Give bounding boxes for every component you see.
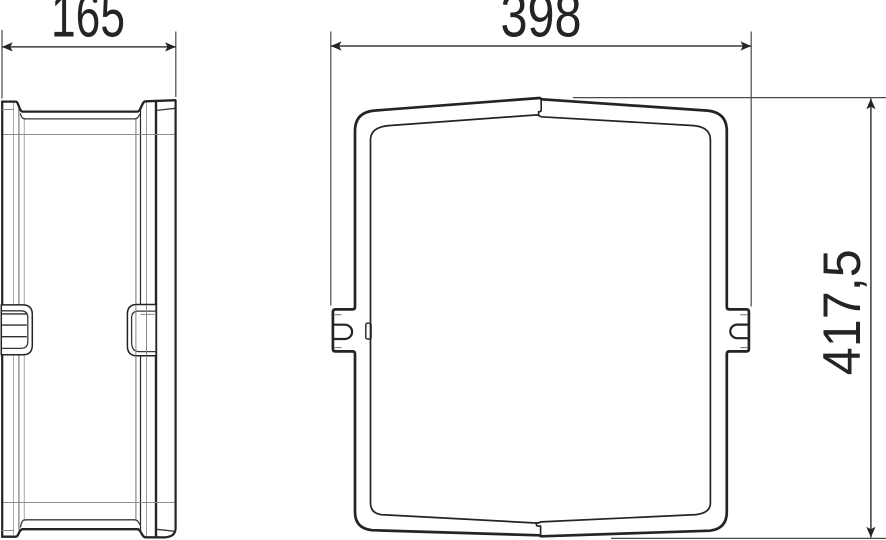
svg-text:165: 165 — [51, 0, 125, 49]
svg-text:417,5: 417,5 — [813, 249, 872, 375]
svg-text:398: 398 — [501, 0, 582, 49]
